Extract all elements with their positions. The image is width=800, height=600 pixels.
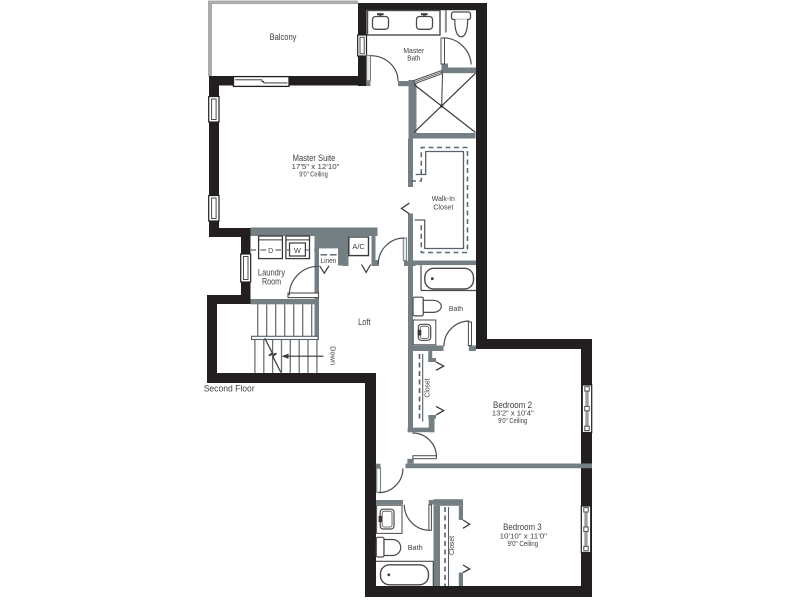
svg-text:Second Floor: Second Floor: [204, 383, 255, 393]
svg-text:A/C: A/C: [352, 244, 365, 251]
svg-text:Master Suite: Master Suite: [293, 153, 336, 163]
svg-text:Linen: Linen: [321, 258, 337, 265]
svg-text:9'0" Ceiling: 9'0" Ceiling: [498, 417, 527, 425]
svg-text:W: W: [294, 248, 301, 255]
svg-text:Closet: Closet: [433, 202, 453, 211]
svg-text:D: D: [268, 248, 273, 255]
svg-text:Bath: Bath: [408, 543, 423, 552]
svg-text:Loft: Loft: [358, 317, 371, 327]
svg-text:Closet: Closet: [422, 378, 431, 397]
svg-text:Closet: Closet: [447, 536, 456, 555]
svg-text:Bedroom 2: Bedroom 2: [493, 400, 532, 410]
svg-text:Bedroom 3: Bedroom 3: [503, 522, 542, 532]
svg-text:Balcony: Balcony: [270, 32, 297, 42]
svg-text:Room: Room: [262, 277, 281, 287]
svg-text:9'0" Ceiling: 9'0" Ceiling: [508, 540, 539, 548]
svg-text:Bath: Bath: [449, 304, 463, 313]
svg-text:9'0" Ceiling: 9'0" Ceiling: [299, 171, 328, 179]
svg-text:Down: Down: [329, 346, 338, 365]
svg-text:Bath: Bath: [407, 53, 420, 62]
